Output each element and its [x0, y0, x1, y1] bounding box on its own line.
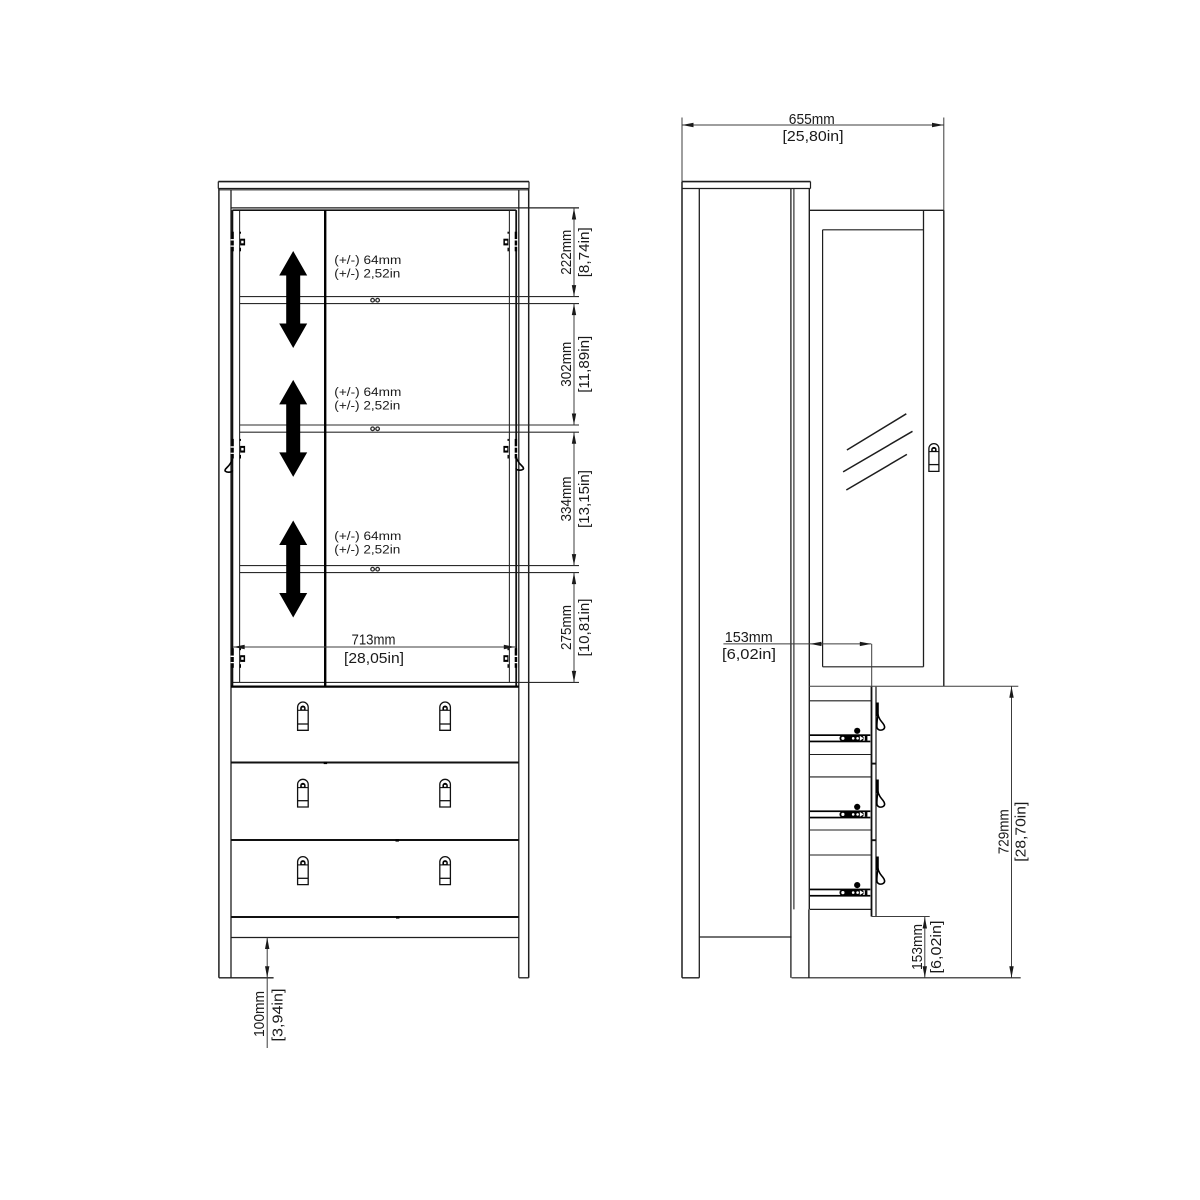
- svg-text:(+/-) 64mm: (+/-) 64mm: [334, 387, 401, 399]
- svg-text:[6,02in]: [6,02in]: [722, 646, 776, 663]
- svg-text:100mm: 100mm: [251, 991, 268, 1037]
- svg-text:[25,80in]: [25,80in]: [783, 128, 844, 145]
- svg-text:153mm: 153mm: [909, 924, 926, 970]
- svg-text:(+/-) 2,52in: (+/-) 2,52in: [334, 401, 400, 413]
- svg-text:655mm: 655mm: [789, 111, 835, 128]
- svg-text:[10,81in]: [10,81in]: [576, 599, 593, 657]
- svg-text:[8,74in]: [8,74in]: [576, 227, 593, 277]
- svg-text:(+/-) 64mm: (+/-) 64mm: [334, 531, 401, 543]
- svg-text:[11,89in]: [11,89in]: [576, 336, 593, 393]
- svg-text:(+/-) 64mm: (+/-) 64mm: [334, 255, 401, 267]
- svg-text:222mm: 222mm: [558, 230, 575, 275]
- svg-text:(+/-) 2,52in: (+/-) 2,52in: [334, 545, 400, 557]
- svg-text:[28,05in]: [28,05in]: [344, 650, 404, 667]
- svg-text:153mm: 153mm: [725, 629, 773, 646]
- svg-text:[28,70in]: [28,70in]: [1013, 802, 1030, 862]
- svg-text:[13,15in]: [13,15in]: [576, 470, 593, 528]
- svg-text:[3,94in]: [3,94in]: [270, 989, 287, 1042]
- svg-text:302mm: 302mm: [558, 342, 575, 387]
- svg-text:334mm: 334mm: [558, 477, 575, 522]
- svg-text:713mm: 713mm: [352, 632, 396, 649]
- svg-text:275mm: 275mm: [558, 605, 575, 650]
- svg-text:(+/-) 2,52in: (+/-) 2,52in: [334, 269, 400, 281]
- svg-text:[6,02in]: [6,02in]: [928, 921, 945, 974]
- svg-text:729mm: 729mm: [996, 809, 1013, 854]
